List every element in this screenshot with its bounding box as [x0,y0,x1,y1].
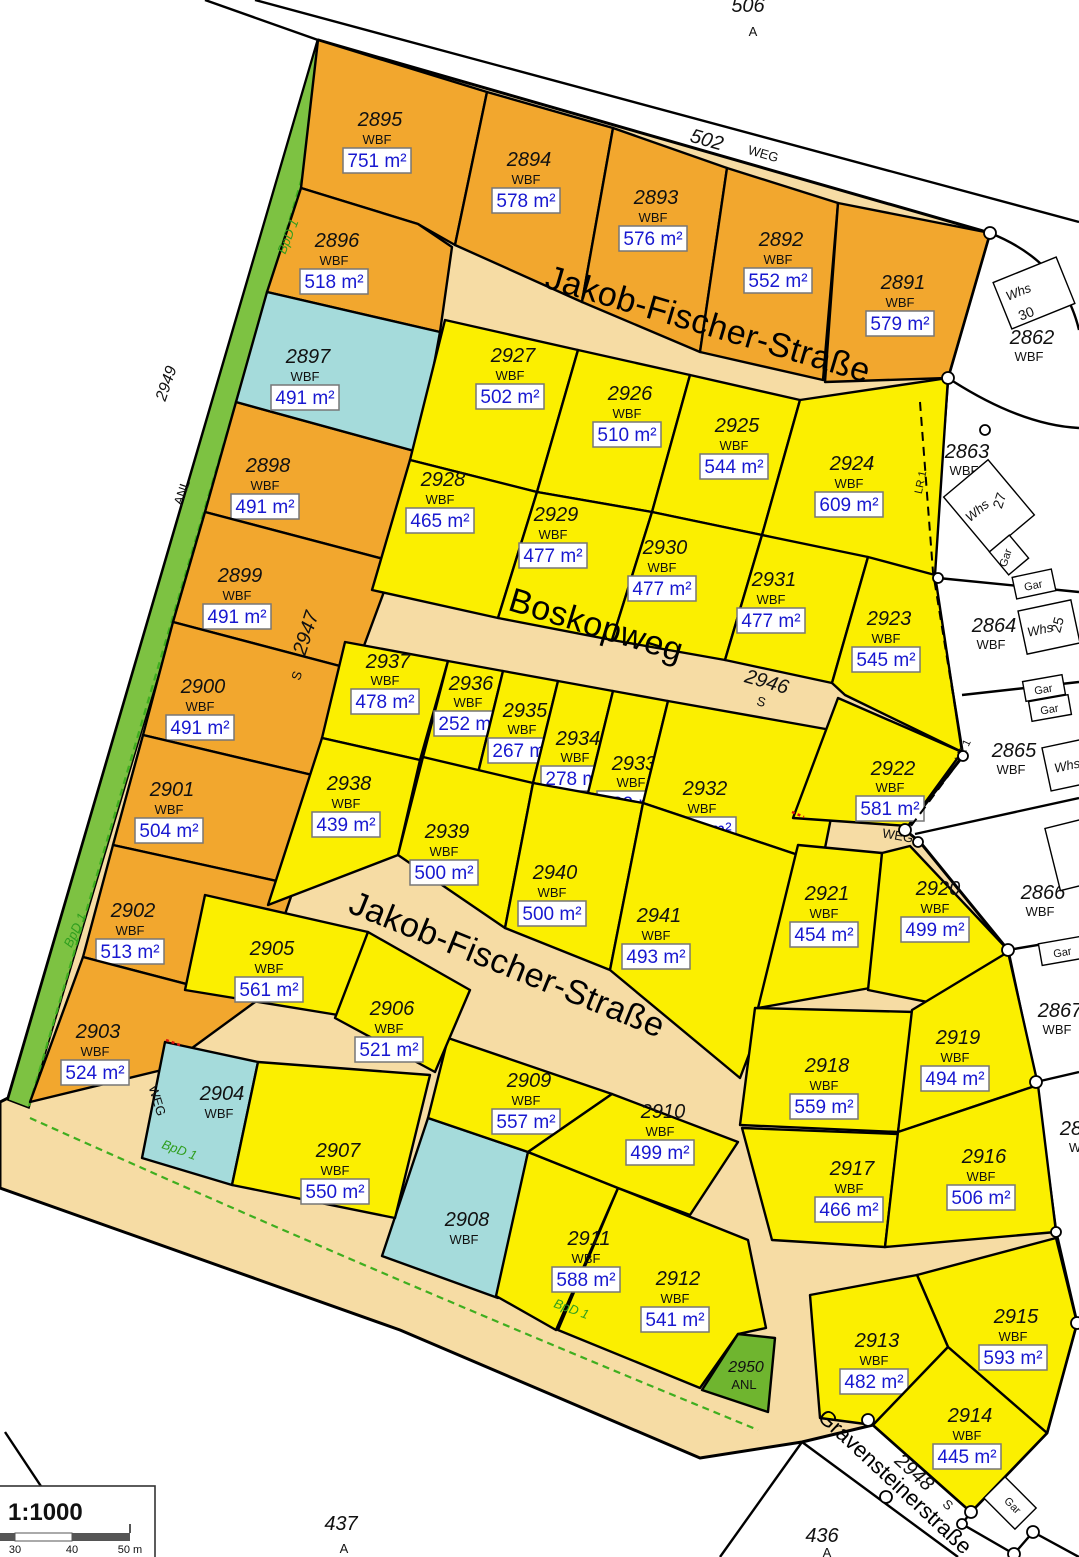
parcel-use: WBF [835,1181,864,1196]
node-icon [933,573,943,583]
parcel-id: 2891 [880,272,926,294]
outside-id-506: 506 [731,0,765,17]
parcel-use: WBF [320,253,349,268]
parcel-2918: 2918 WBF 559 m² [740,1008,915,1132]
parcel-id: 2922 [870,758,916,780]
parcel-id: 2937 [365,651,411,673]
parcel-use: WBF [450,1232,479,1247]
parcel-use: WBF [155,802,184,817]
outside-id-436: 436 [805,1525,839,1547]
parcel-use: WBF [116,923,145,938]
parcel-id: 2909 [506,1070,552,1092]
node-icon [1002,944,1014,956]
parcel-area: 541 m² [645,1310,704,1331]
parcel-id: 2928 [420,469,466,491]
parcel-area: 544 m² [704,457,763,478]
node-icon [1071,1317,1079,1329]
parcel-area: 477 m² [632,579,691,600]
parcel-area: 559 m² [794,1097,853,1118]
node-icon [965,1506,977,1518]
parcel-use: WBF [430,844,459,859]
parcel-area: 502 m² [480,387,539,408]
parcel-id: 2893 [633,187,679,209]
parcel-id: 2915 [993,1306,1039,1328]
parcel-id: 2921 [804,883,850,905]
parcel-id: 2940 [532,862,578,884]
parcel-use: WBF [512,1093,541,1108]
parcel-id: 2913 [854,1330,900,1352]
neighbor-id-2862: 2862 [1009,327,1055,349]
parcel-id: 2927 [490,345,536,367]
parcel-area: 545 m² [856,650,915,671]
parcel-use: WBF [876,780,905,795]
parcel-id: 2902 [110,900,156,922]
parcel-id: 2938 [326,773,372,795]
parcel-use: WBF [810,1078,839,1093]
divider-2863-2864 [938,578,1079,592]
parcel-use: WBF [886,295,915,310]
scalebar-seg-dark1 [0,1533,15,1541]
parcel-id: 2903 [75,1021,121,1043]
parcel-use: WBF [617,775,646,790]
neighbor-id-2868-partial: 28 [1059,1118,1079,1140]
parcel-area: 579 m² [870,314,929,335]
neighbor-use-2865: WBF [997,762,1026,777]
building-2866 [1045,817,1079,890]
parcel-area: 593 m² [983,1348,1042,1369]
parcel-use: WBF [688,801,717,816]
parcel-use: WBF [764,252,793,267]
parcel-id: 2939 [424,821,470,843]
parcel-area: 504 m² [139,821,198,842]
parcel-area: 524 m² [65,1063,124,1084]
legend-tick-40: 40 [66,1544,78,1556]
parcel-id: 2929 [533,504,579,526]
road-type-502: WEG [746,142,780,165]
parcel-area: 491 m² [275,388,334,409]
parcel-id: 2933 [611,753,657,775]
parcel-use: WBF [512,172,541,187]
parcel-area: 521 m² [359,1040,418,1061]
node-icon [862,1414,874,1426]
parcel-use: WBF [255,961,284,976]
parcel-id: 2926 [607,383,653,405]
parcel-area: 478 m² [355,692,414,713]
parcel-area: 609 m² [819,495,878,516]
neighbor-use-2868-partial: W [1069,1140,1079,1155]
legend-scale: 1:1000 [8,1499,83,1526]
parcel-area: 751 m² [347,151,406,172]
parcel-area: 513 m² [100,942,159,963]
parcel-area: 500 m² [414,863,473,884]
parcel-id: 2899 [217,565,263,587]
zoning-map: 2895 WBF 751 m² 2894 WBF 578 m² 2893 WBF… [0,0,1079,1557]
parcel-use: WBF [375,1021,404,1036]
parcel-area: 477 m² [741,611,800,632]
parcel-use: WBF [720,438,749,453]
scalebar-seg-light [15,1533,72,1541]
parcel-use: WBF [613,406,642,421]
parcel-id: 2900 [180,676,226,698]
parcel-use: WBF [332,796,361,811]
parcel-use: WBF [642,928,671,943]
parcel-id: 2925 [714,415,760,437]
node-icon [958,751,968,761]
parcel-use: WBF [810,906,839,921]
neighbor-id-2863: 2863 [944,441,990,463]
parcel-use: WBF [496,368,525,383]
parcel-id: 2930 [642,537,688,559]
outside-use-506: A [749,24,758,39]
parcel-area: 465 m² [410,511,469,532]
parcel-id: 2906 [369,998,415,1020]
parcel-id: 2916 [961,1146,1007,1168]
parcel-id: 2910 [640,1101,686,1123]
parcel-id: 2919 [935,1027,981,1049]
parcel-use: WBF [454,695,483,710]
node-icon [913,837,923,847]
neighbor-use-2867: WBF [1043,1022,1072,1037]
curve-line-2862 [948,378,1079,428]
parcel-use: WBF [953,1428,982,1443]
parcel-id: 2931 [751,569,797,591]
parcel-area: 482 m² [844,1372,903,1393]
neighbor-id-2867: 2867 [1037,1000,1079,1022]
parcel-id: 2932 [682,778,728,800]
node-icon [1027,1526,1039,1538]
parcel-id: 2901 [149,779,195,801]
parcel-area: 491 m² [235,497,294,518]
parcel-use: WBF [371,673,400,688]
parcel-id: 2935 [502,700,548,722]
node-icon [899,824,911,836]
parcel-id: 2950 [727,1359,764,1376]
outside-use-437: A [340,1541,349,1556]
parcel-area: 477 m² [523,546,582,567]
parcel-use: WBF [205,1106,234,1121]
parcel-use: WBF [639,210,668,225]
parcel-area: 500 m² [522,904,581,925]
parcel-use: WBF [223,588,252,603]
parcel-use: WBF [539,527,568,542]
parcel-use: WBF [921,901,950,916]
parcel-id: 2907 [315,1140,361,1162]
legend-tick-50: 50 m [118,1544,142,1556]
parcel-use: ANL [731,1377,756,1392]
parcel-id: 2904 [199,1083,245,1105]
parcel-id: 2923 [866,608,912,630]
parcel-use: WBF [186,699,215,714]
parcel-area: 506 m² [951,1188,1010,1209]
parcel-area: 576 m² [623,229,682,250]
parcel-area: 561 m² [239,980,298,1001]
parcel-id: 2898 [245,455,291,477]
node-icon [1008,1548,1020,1557]
gravensteiner-line-w [720,1442,802,1557]
parcel-area: 557 m² [496,1112,555,1133]
parcel-area: 491 m² [170,718,229,739]
parcel-id: 2918 [804,1055,850,1077]
zoning-plan-page: 2895 WBF 751 m² 2894 WBF 578 m² 2893 WBF… [0,0,1079,1557]
parcel-use: WBF [835,476,864,491]
parcel-use: WBF [426,492,455,507]
parcel-id: 2924 [829,453,875,475]
parcel-id: 2895 [357,109,403,131]
parcel-use: WBF [860,1353,889,1368]
parcel-id: 2894 [506,149,552,171]
parcel-id: 2936 [448,673,494,695]
neighbor-use-2862: WBF [1015,349,1044,364]
parcel-use: WBF [81,1044,110,1059]
parcel-use: WBF [508,722,537,737]
parcel-use: WBF [757,592,786,607]
parcel-use: WBF [538,885,567,900]
node-icon [984,227,996,239]
parcel-id: 2896 [314,230,360,252]
neighbor-use-2866: WBF [1026,904,1055,919]
parcel-id: 2941 [636,905,682,927]
node-icon [942,372,954,384]
parcel-id: 2914 [947,1405,993,1427]
parcel-area: 499 m² [905,920,964,941]
parcel-use: WBF [872,631,901,646]
parcel-use: WBF [967,1169,996,1184]
parcel-use: WBF [572,1251,601,1266]
parcel-id: 2911 [566,1228,610,1250]
parcel-area: 578 m² [496,191,555,212]
parcel-area: 550 m² [305,1182,364,1203]
parcel-use: WBF [363,132,392,147]
parcel-area: 581 m² [860,799,919,820]
parcel-area: 510 m² [597,425,656,446]
parcel-use: WBF [999,1329,1028,1344]
parcel-use: WBF [291,369,320,384]
parcel-area: 588 m² [556,1270,615,1291]
node-icon [1051,1227,1061,1237]
top-road-wedge-line [205,0,318,40]
strip-id-2949: 2949 [153,364,181,404]
parcel-id: 2920 [915,878,961,900]
parcel-id: 2905 [249,938,295,960]
parcel-use: WBF [321,1163,350,1178]
neighbor-use-2864: WBF [977,637,1006,652]
parcel-area: 499 m² [630,1143,689,1164]
parcel-use: WBF [251,478,280,493]
parcel-area: 493 m² [626,947,685,968]
parcel-use: WBF [648,560,677,575]
parcel-id: 2892 [758,229,804,251]
node-icon [980,425,990,435]
parcel-area: 552 m² [748,271,807,292]
node-icon [880,1491,892,1503]
node-icon [1030,1076,1042,1088]
outside-use-436: A [823,1545,832,1557]
neighbor-id-2864: 2864 [971,615,1017,637]
parcel-area: 494 m² [925,1069,984,1090]
parcel-use: WBF [941,1050,970,1065]
parcel-area: 454 m² [794,925,853,946]
parcel-id: 2917 [829,1158,875,1180]
parcel-area: 439 m² [316,815,375,836]
legend-tick-30: 30 [9,1544,21,1556]
parcel-area: 491 m² [207,607,266,628]
parcel-area: 466 m² [819,1200,878,1221]
parcel-use: WBF [646,1124,675,1139]
parcel-id: 2897 [285,346,331,368]
scale-legend: 1:1000 30 40 50 m [0,1486,155,1557]
parcel-id: 2934 [555,728,601,750]
parcel-use: WBF [561,750,590,765]
neighbor-id-2865: 2865 [991,740,1037,762]
node-icon [957,1519,967,1529]
parcel-area: 445 m² [937,1447,996,1468]
parcel-use: WBF [661,1291,690,1306]
scalebar-seg-dark2 [72,1533,130,1541]
parcel-area: 518 m² [304,272,363,293]
parcel-id: 2908 [444,1209,490,1231]
outside-id-437: 437 [324,1513,358,1535]
parcel-id: 2912 [655,1268,701,1290]
